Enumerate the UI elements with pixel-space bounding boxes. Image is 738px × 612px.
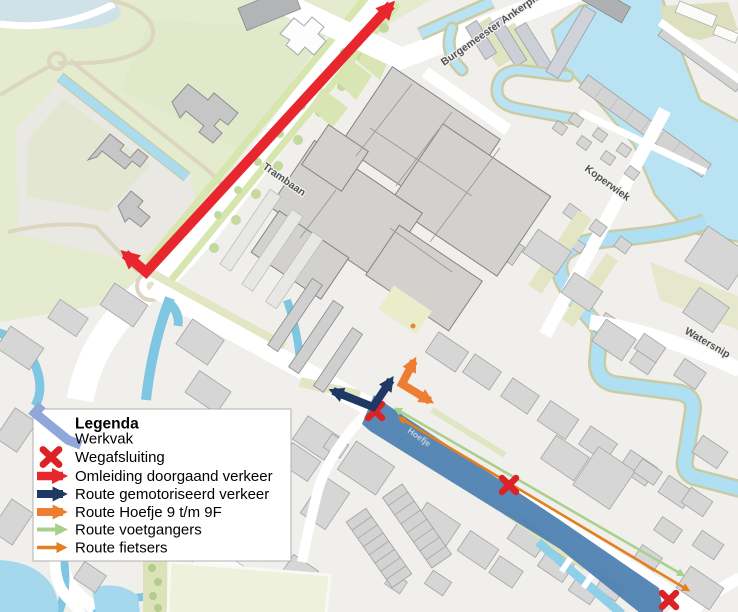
- svg-text:Route fietsers: Route fietsers: [75, 540, 168, 557]
- svg-text:Route gemotoriseerd verkeer: Route gemotoriseerd verkeer: [75, 486, 269, 503]
- svg-text:Omleiding doorgaand verkeer: Omleiding doorgaand verkeer: [75, 468, 273, 485]
- svg-text:Route Hoefje 9 t/m 9F: Route Hoefje 9 t/m 9F: [75, 504, 222, 521]
- svg-text:Werkvak: Werkvak: [75, 431, 134, 448]
- svg-text:Wegafsluiting: Wegafsluiting: [75, 449, 165, 466]
- svg-text:Route voetgangers: Route voetgangers: [75, 522, 202, 539]
